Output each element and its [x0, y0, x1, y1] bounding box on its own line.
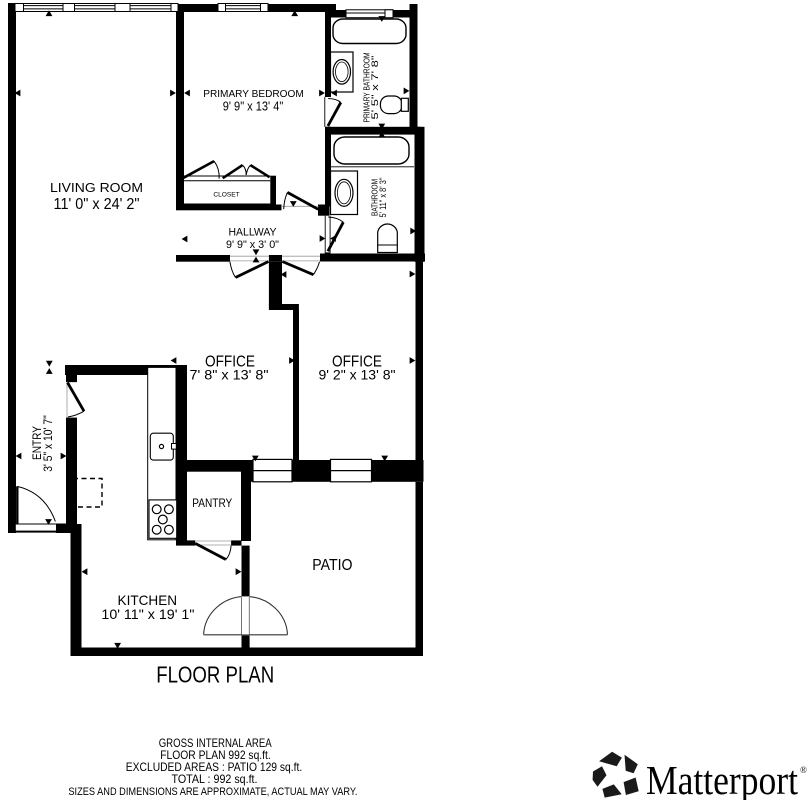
svg-text:PATIO: PATIO: [312, 557, 352, 574]
svg-text:9' 9" x 3' 0": 9' 9" x 3' 0": [226, 239, 279, 251]
svg-text:HALLWAY: HALLWAY: [229, 226, 278, 238]
svg-text:FLOOR PLAN: FLOOR PLAN: [156, 662, 274, 688]
svg-text:9' 2" x 13' 8": 9' 2" x 13' 8": [319, 367, 396, 383]
svg-text:SIZES AND DIMENSIONS ARE APPRO: SIZES AND DIMENSIONS ARE APPROXIMATE, AC…: [68, 786, 357, 798]
svg-text:PANTRY: PANTRY: [192, 496, 232, 510]
svg-text:5' 11" x 8' 3": 5' 11" x 8' 3": [378, 178, 388, 218]
svg-text:10' 11" x 19' 1": 10' 11" x 19' 1": [101, 607, 194, 622]
svg-text:CLOSET: CLOSET: [213, 191, 239, 198]
svg-text:7' 8" x 13' 8": 7' 8" x 13' 8": [190, 367, 269, 383]
svg-text:Matterport: Matterport: [646, 757, 799, 800]
svg-text:®: ®: [800, 765, 807, 775]
svg-text:TOTAL : 992 sq.ft.: TOTAL : 992 sq.ft.: [172, 772, 258, 786]
svg-text:ENTRY: ENTRY: [30, 426, 44, 460]
svg-text:5' 5" x 7' 8": 5' 5" x 7' 8": [370, 56, 380, 120]
svg-text:9' 9" x 13' 4": 9' 9" x 13' 4": [223, 100, 284, 114]
svg-text:3' 5" x 10' 7": 3' 5" x 10' 7": [43, 415, 55, 472]
svg-text:11' 0" x 24' 2": 11' 0" x 24' 2": [54, 196, 140, 213]
svg-text:PRIMARY BEDROOM: PRIMARY BEDROOM: [203, 89, 304, 100]
svg-text:LIVING ROOM: LIVING ROOM: [50, 181, 143, 195]
svg-text:KITCHEN: KITCHEN: [118, 593, 178, 608]
